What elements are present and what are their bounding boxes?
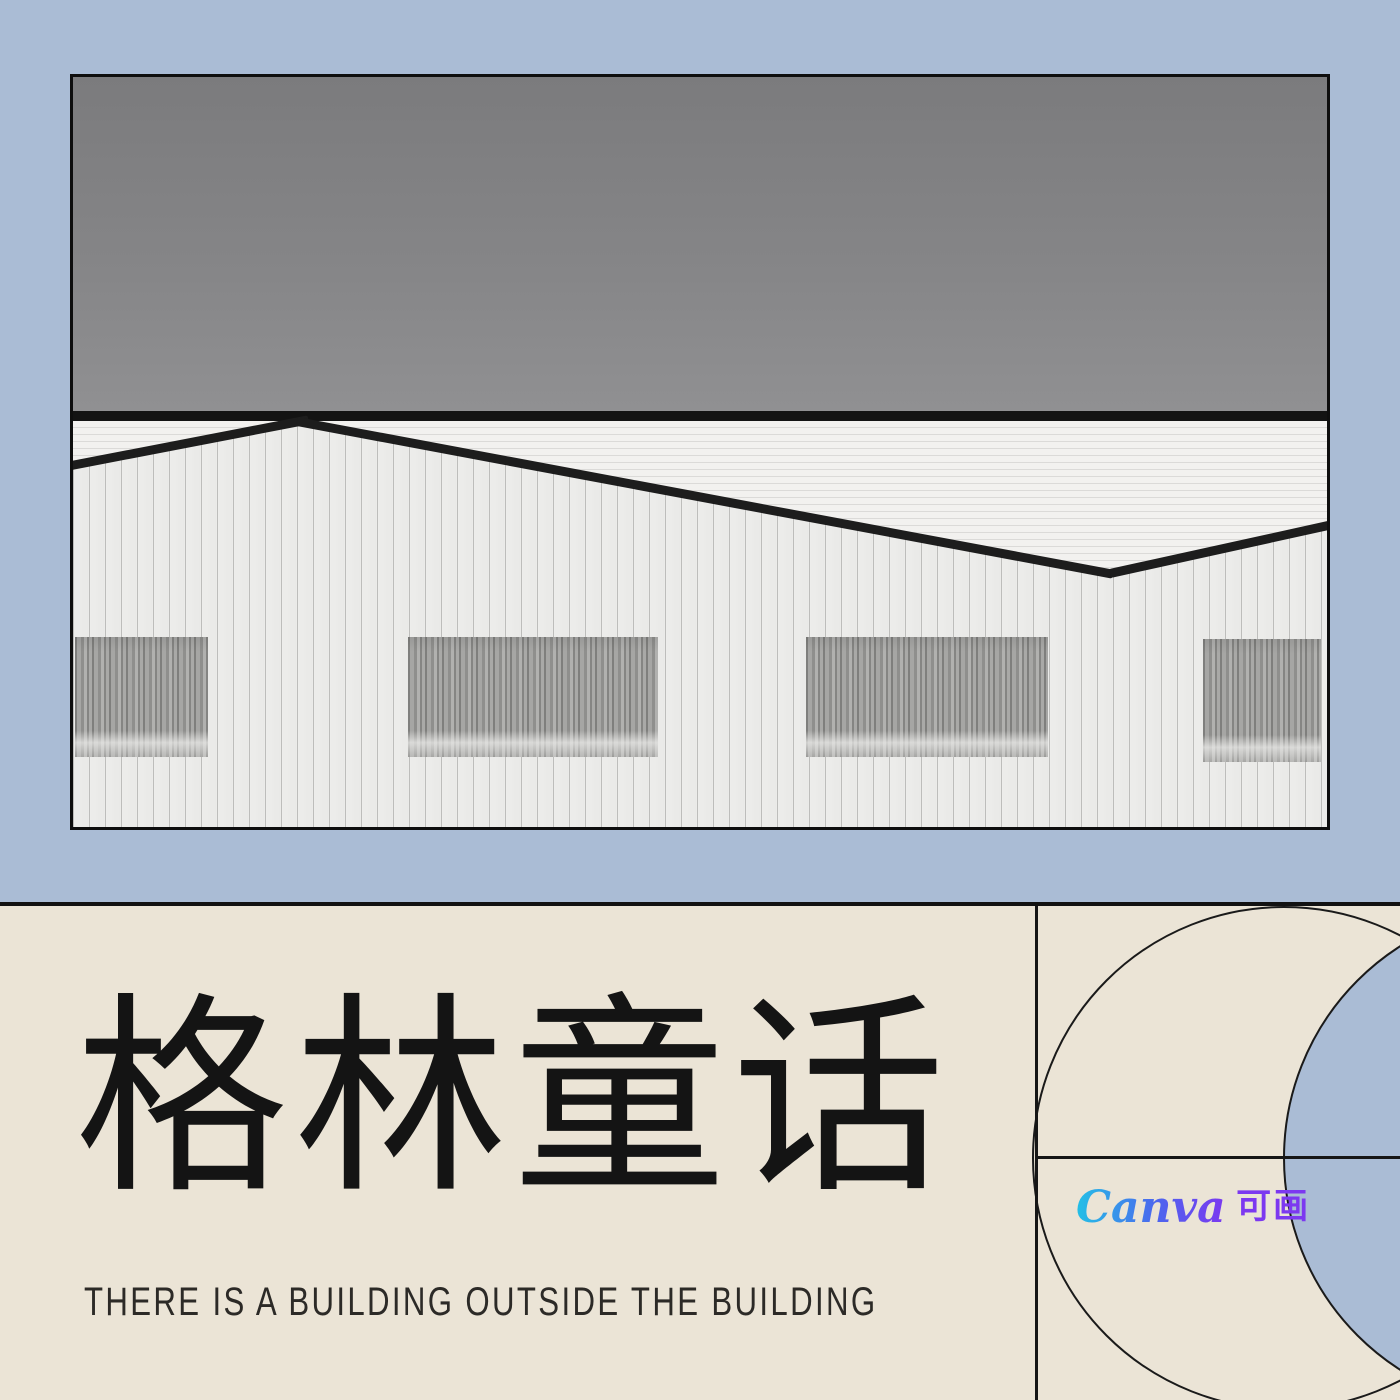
canva-logo-text: Canva bbox=[1076, 1182, 1226, 1233]
poster-title: 格林童话 bbox=[75, 986, 951, 1216]
photo-window-band bbox=[1203, 639, 1321, 762]
photo-window-band bbox=[408, 637, 658, 757]
poster-subtitle: THERE IS A BUILDING OUTSIDE THE BUILDING bbox=[84, 1280, 877, 1325]
photo-roofline-band bbox=[73, 411, 1327, 421]
canva-logo-cjk: 可画 bbox=[1236, 1186, 1310, 1227]
horizontal-grid-line bbox=[1035, 1156, 1400, 1159]
photo-window-band bbox=[806, 637, 1048, 757]
photo-sky bbox=[73, 77, 1327, 411]
poster-canvas: 格林童话 THERE IS A BUILDING OUTSIDE THE BUI… bbox=[0, 0, 1400, 1400]
canva-watermark: Canva 可画 bbox=[1076, 1178, 1310, 1233]
section-divider-line bbox=[0, 902, 1400, 906]
vertical-grid-line bbox=[1035, 906, 1038, 1400]
photo-window-band bbox=[75, 637, 208, 757]
building-photo bbox=[70, 74, 1330, 830]
